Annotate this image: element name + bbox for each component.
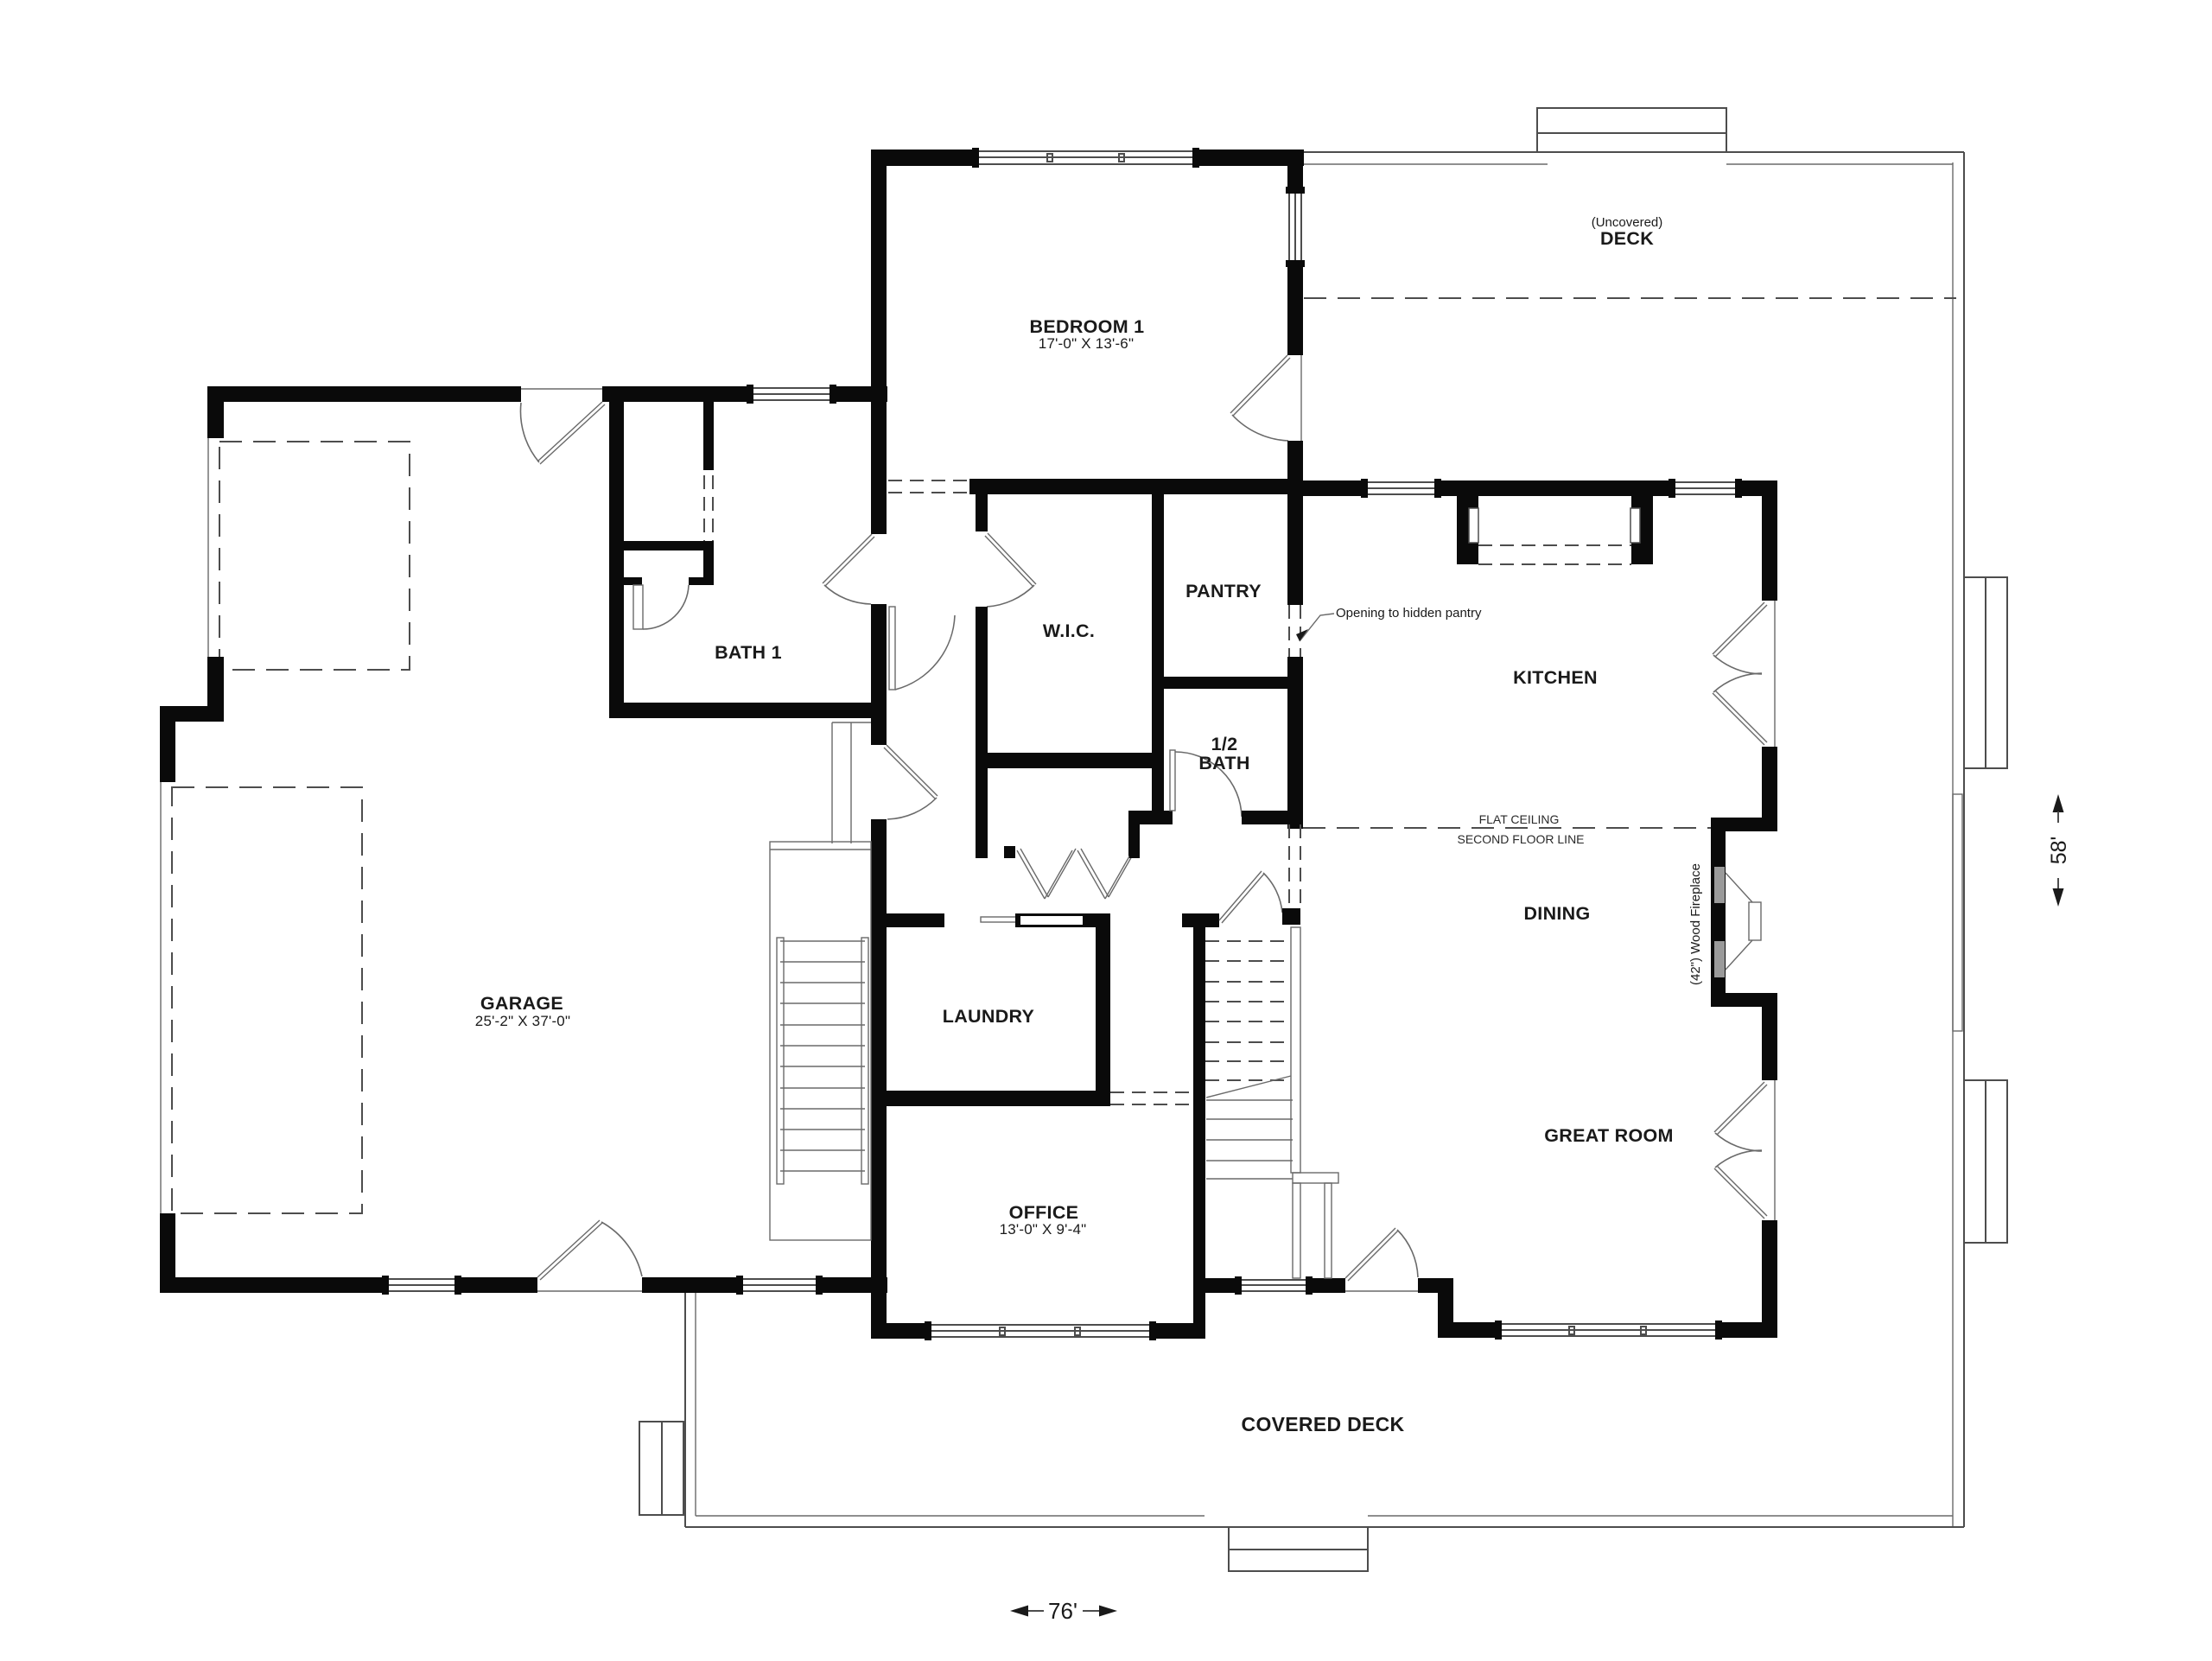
svg-text:BEDROOM 1: BEDROOM 1 bbox=[1030, 316, 1145, 337]
svg-text:BATH: BATH bbox=[1198, 753, 1249, 773]
svg-text:BATH 1: BATH 1 bbox=[715, 642, 782, 663]
svg-text:(42") Wood Fireplace: (42") Wood Fireplace bbox=[1688, 863, 1703, 985]
svg-text:13'-0" X 9'-4": 13'-0" X 9'-4" bbox=[1000, 1221, 1087, 1238]
svg-text:GARAGE: GARAGE bbox=[480, 993, 563, 1014]
svg-text:76': 76' bbox=[1048, 1598, 1077, 1624]
svg-text:W.I.C.: W.I.C. bbox=[1043, 620, 1095, 641]
svg-text:LAUNDRY: LAUNDRY bbox=[943, 1006, 1034, 1027]
svg-text:17'-0" X 13'-6": 17'-0" X 13'-6" bbox=[1039, 335, 1134, 352]
svg-text:Opening to hidden pantry: Opening to hidden pantry bbox=[1336, 606, 1482, 620]
svg-text:25'-2" X 37'-0": 25'-2" X 37'-0" bbox=[475, 1013, 570, 1029]
svg-text:GREAT ROOM: GREAT ROOM bbox=[1544, 1125, 1674, 1146]
svg-text:1/2: 1/2 bbox=[1211, 734, 1238, 754]
svg-text:KITCHEN: KITCHEN bbox=[1513, 667, 1598, 688]
svg-text:58': 58' bbox=[2047, 837, 2071, 865]
svg-text:DINING: DINING bbox=[1523, 903, 1590, 924]
svg-text:DECK: DECK bbox=[1600, 228, 1654, 249]
svg-text:COVERED DECK: COVERED DECK bbox=[1242, 1413, 1405, 1435]
svg-text:PANTRY: PANTRY bbox=[1185, 581, 1262, 601]
svg-text:FLAT CEILING: FLAT CEILING bbox=[1479, 812, 1560, 826]
svg-text:OFFICE: OFFICE bbox=[1009, 1202, 1079, 1223]
svg-text:SECOND FLOOR LINE: SECOND FLOOR LINE bbox=[1457, 832, 1584, 846]
